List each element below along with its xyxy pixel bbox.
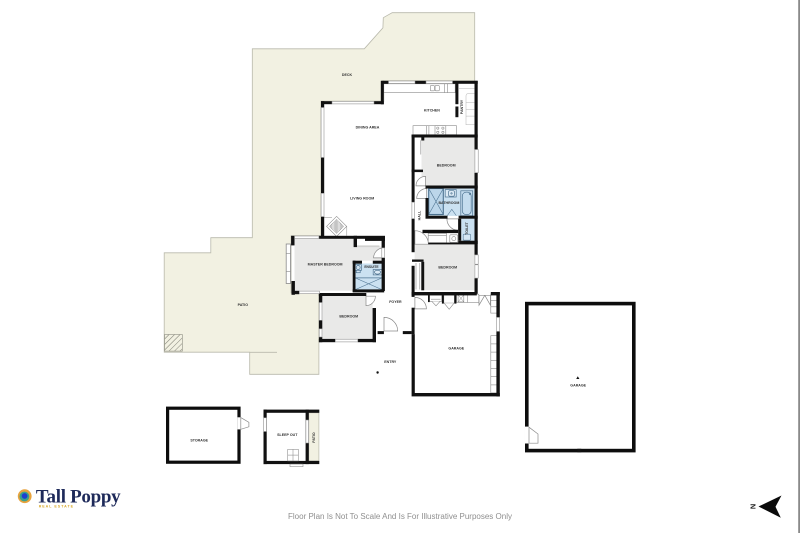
svg-text:BEDROOM: BEDROOM [438, 265, 457, 269]
svg-text:LIVING ROOM: LIVING ROOM [350, 196, 374, 200]
svg-text:N: N [749, 504, 758, 509]
svg-text:Floor Plan Is Not To Scale And: Floor Plan Is Not To Scale And Is For Il… [288, 512, 512, 521]
svg-text:ENSUITE: ENSUITE [364, 265, 379, 269]
svg-text:BEDROOM: BEDROOM [437, 164, 456, 168]
svg-text:BEDROOM: BEDROOM [339, 315, 358, 319]
svg-text:PATIO: PATIO [238, 303, 249, 307]
svg-text:STORAGE: STORAGE [190, 439, 208, 443]
svg-text:PANTRY: PANTRY [460, 99, 464, 114]
svg-text:HALL: HALL [417, 210, 421, 220]
svg-text:ENTRY: ENTRY [384, 360, 397, 364]
svg-text:BATHROOM: BATHROOM [438, 201, 459, 205]
svg-text:GARAGE: GARAGE [448, 346, 464, 350]
svg-text:DINING AREA: DINING AREA [356, 126, 380, 130]
svg-text:REAL ESTATE: REAL ESTATE [39, 504, 74, 508]
svg-text:GARAGE: GARAGE [570, 384, 586, 388]
svg-text:SLEEP OUT: SLEEP OUT [277, 433, 298, 437]
svg-text:DECK: DECK [342, 73, 353, 77]
svg-text:MASTER BEDROOM: MASTER BEDROOM [308, 262, 343, 266]
svg-text:KITCHEN: KITCHEN [424, 108, 440, 112]
svg-text:FOYER: FOYER [389, 300, 402, 304]
svg-text:PATIO: PATIO [312, 432, 316, 443]
svg-text:TOILET: TOILET [465, 221, 469, 235]
